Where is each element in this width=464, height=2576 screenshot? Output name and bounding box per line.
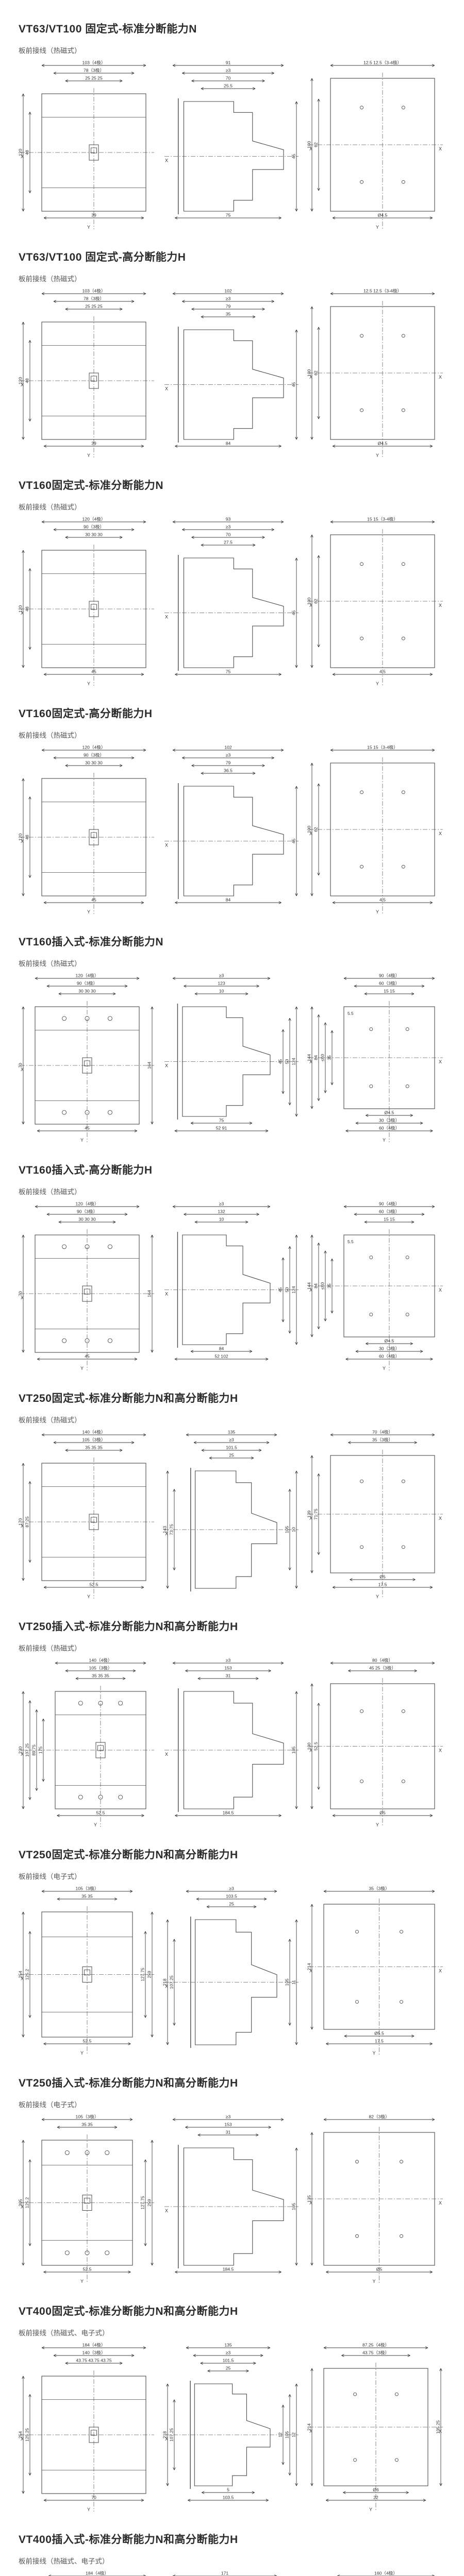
svg-text:48: 48 [25, 378, 30, 383]
svg-text:X: X [439, 1287, 442, 1293]
section-10: VT250插入式-标准分断能力N和高分断能力H板前接线（电子式）XY105（3极… [19, 2075, 449, 2285]
svg-text:105（3极）: 105（3极） [76, 1886, 99, 1891]
svg-text:101.5: 101.5 [226, 1445, 237, 1450]
rear-view-drawing: XXY12.5 12.5（3-4极）Ø4.510062 [307, 289, 444, 460]
svg-text:X: X [439, 1516, 442, 1521]
svg-text:Ø5.5: Ø5.5 [374, 2031, 384, 2036]
svg-text:≥3: ≥3 [226, 296, 231, 301]
svg-text:52.5: 52.5 [83, 2039, 92, 2044]
svg-text:31: 31 [226, 1673, 231, 1679]
rear-view: XXY160（4极）115（3极）132（3极）176（4极）21813565.… [307, 2571, 444, 2576]
svg-text:≥3: ≥3 [226, 1658, 231, 1663]
svg-text:X: X [165, 1752, 168, 1757]
svg-text:144: 144 [307, 1054, 312, 1062]
svg-text:Y: Y [383, 1138, 386, 1143]
svg-text:171: 171 [221, 2571, 229, 2576]
svg-text:22: 22 [373, 2495, 378, 2500]
svg-text:79: 79 [226, 760, 231, 766]
svg-text:Y: Y [87, 453, 90, 458]
section-title: VT250插入式-标准分断能力N和高分断能力H [19, 2075, 449, 2090]
svg-text:35 35 35: 35 35 35 [85, 1445, 103, 1450]
svg-text:105（3极）: 105（3极） [76, 2114, 99, 2120]
svg-text:25 25 25: 25 25 25 [85, 76, 103, 81]
svg-text:164: 164 [147, 1062, 152, 1070]
svg-text:43.75（3极）: 43.75（3极） [362, 2350, 389, 2355]
rear-view-drawing: XXY12.5 12.5（3-4极）Ø4.510062 [307, 60, 444, 231]
svg-text:30 30 30: 30 30 30 [85, 532, 103, 537]
section-9: VT250固定式-标准分断能力N和高分断能力H板前接线（电子式）XY105（3极… [19, 1846, 449, 2057]
svg-text:Y: Y [376, 225, 379, 230]
front-view-drawing: XY140（4极）105（3极）35 35 3552.517087.25 [19, 1430, 156, 1601]
section-7: VT250固定式-标准分断能力N和高分断能力H板前接线（热磁式）XY140（4极… [19, 1390, 449, 1601]
front-view-drawing: XY105（3极）35 3552.5305125.2259127.75 [19, 2114, 156, 2285]
svg-text:140（4极）: 140（4极） [82, 1430, 106, 1435]
drawing-row: XY103（4极）78（3极）25 25 253912048X102≥37935… [19, 289, 449, 460]
rear-view: XXY12.5 12.5（3-4极）Ø4.510062 [307, 289, 444, 460]
section-8: VT250插入式-标准分断能力N和高分断能力H板前接线（热磁式）XY140（4极… [19, 1618, 449, 1829]
svg-text:≥3: ≥3 [219, 973, 224, 978]
drawing-row: XY105（3极）35 3552.5254125.2259127.75X≥310… [19, 1886, 449, 2057]
side-view-drawing: X≥315331184.5105 [163, 1658, 300, 1829]
svg-text:Y: Y [80, 2279, 84, 2284]
rear-view: XXY90（4极）60（3极）15 15Ø4.530（3极）60（4极）1448… [307, 1201, 444, 1372]
svg-text:≤60: ≤60 [320, 1054, 325, 1061]
wiring-subtitle: 板前接线（热磁式） [19, 45, 449, 55]
svg-text:135: 135 [224, 2343, 232, 2348]
section-11: VT400固定式-标准分断能力N和高分断能力H板前接线（热磁式、电子式）XY18… [19, 2303, 449, 2514]
svg-text:30（3极）: 30（3极） [379, 1346, 400, 1351]
svg-text:143: 143 [163, 1526, 168, 1534]
svg-text:90（4极）: 90（4极） [379, 973, 400, 978]
rear-view-drawing: XXY90（4极）60（3极）15 15Ø4.530（3极）60（4极）1448… [307, 973, 444, 1144]
svg-text:90（3极）: 90（3极） [84, 524, 104, 530]
svg-text:X: X [439, 1969, 442, 1974]
side-view-drawing: X102≥379358445 [163, 289, 300, 460]
svg-text:91: 91 [226, 60, 231, 65]
front-view-drawing: XY184（4极）140（3极）43.75 43.75 43.757025412… [19, 2343, 156, 2514]
svg-text:140（3极）: 140（3极） [82, 2350, 106, 2355]
svg-text:120（4极）: 120（4极） [82, 745, 106, 750]
svg-text:Y: Y [87, 909, 90, 914]
svg-text:127.75: 127.75 [140, 2196, 145, 2210]
svg-text:35 35: 35 35 [81, 2122, 93, 2127]
svg-text:84: 84 [313, 1283, 319, 1289]
svg-text:175: 175 [38, 1747, 43, 1754]
drawing-row: XY105（3极）35 3552.5305125.2259127.75X≥315… [19, 2114, 449, 2285]
svg-text:123: 123 [218, 981, 225, 986]
svg-text:120（4极）: 120（4极） [76, 973, 99, 978]
rear-view-drawing: XXY35（3极）Ø5.517.5214 [307, 1886, 444, 2057]
svg-text:105: 105 [291, 1747, 296, 1754]
svg-text:170: 170 [19, 1518, 23, 1526]
side-view: X135≥3101.5255103.5218107.251210512 [163, 2343, 300, 2514]
wiring-subtitle: 板前接线（电子式） [19, 1871, 449, 1881]
rear-view: XXY82（3极）Ø5135 [307, 2114, 444, 2285]
section-title: VT400固定式-标准分断能力N和高分断能力H [19, 2303, 449, 2318]
svg-text:127.75: 127.75 [140, 1968, 145, 1981]
svg-text:36.5: 36.5 [224, 768, 233, 773]
rear-view: XXY35（3极）Ø5.517.5214 [307, 1886, 444, 2057]
svg-text:184.5: 184.5 [223, 2267, 234, 2272]
svg-text:105: 105 [285, 2431, 290, 2439]
svg-text:45: 45 [291, 839, 296, 844]
svg-text:254: 254 [19, 1971, 23, 1978]
svg-text:11: 11 [291, 1980, 296, 1985]
front-view: XY103（4极）78（3极）25 25 253912048 [19, 60, 156, 231]
svg-text:5: 5 [227, 2487, 229, 2493]
svg-text:132: 132 [218, 1209, 225, 1214]
svg-text:70（4极）: 70（4极） [372, 1430, 393, 1435]
svg-text:120: 120 [19, 149, 23, 157]
svg-text:45: 45 [91, 669, 96, 674]
svg-text:50: 50 [285, 1287, 290, 1293]
svg-text:153: 153 [224, 2122, 232, 2127]
svg-text:≥3: ≥3 [226, 2350, 231, 2355]
front-view: XY105（3极）35 3552.5305125.2259127.75 [19, 2114, 156, 2285]
svg-text:218: 218 [163, 2431, 168, 2439]
section-title: VT400插入式-标准分断能力N和高分断能力H [19, 2531, 449, 2547]
svg-text:103.5: 103.5 [226, 1894, 237, 1899]
svg-text:105: 105 [285, 1978, 290, 1986]
front-view: XY120（4极）90（3极）30 30 304570164 [19, 973, 156, 1144]
svg-text:25.5: 25.5 [224, 83, 233, 89]
rear-view: XXY87.25（4极）43.75（3极）Ø622214105.25 [307, 2343, 444, 2514]
drawing-row: XY103（4极）78（3极）25 25 253912048X91≥37025.… [19, 60, 449, 231]
svg-text:90（3极）: 90（3极） [84, 752, 104, 758]
svg-text:≥3: ≥3 [226, 68, 231, 73]
svg-text:124: 124 [291, 1058, 296, 1065]
svg-text:35: 35 [226, 312, 231, 317]
side-view-drawing: X102≥37936.58445 [163, 745, 300, 916]
wiring-subtitle: 板前接线（热磁式） [19, 273, 449, 283]
svg-text:4.5: 4.5 [379, 897, 386, 903]
front-view-drawing: XY184（4极）140（3极）43.75 43.75 43.757030515… [19, 2571, 156, 2576]
svg-text:Y: Y [376, 1822, 379, 1827]
svg-text:39: 39 [91, 441, 96, 446]
svg-text:25 25 25: 25 25 25 [85, 304, 103, 309]
svg-text:100: 100 [307, 826, 312, 834]
front-view-drawing: XY120（4极）90（3极）30 30 304512048 [19, 517, 156, 688]
svg-text:39: 39 [91, 213, 96, 218]
rear-view: XXY15 15（3-4极）4.510062 [307, 517, 444, 688]
side-view-drawing: X≥315331184.5105 [163, 2114, 300, 2285]
svg-text:144: 144 [307, 1282, 312, 1290]
svg-text:Ø5: Ø5 [379, 1810, 386, 1816]
sections-container: VT63/VT100 固定式-标准分断能力N板前接线（热磁式）XY103（4极）… [19, 21, 449, 2576]
front-view: XY120（4极）90（3极）30 30 304570164 [19, 1201, 156, 1372]
svg-text:120: 120 [19, 834, 23, 841]
svg-text:52 102: 52 102 [214, 1354, 228, 1359]
svg-text:90（3极）: 90（3极） [77, 1209, 97, 1214]
front-view-drawing: XY105（3极）35 3552.5254125.2259127.75 [19, 1886, 156, 2057]
svg-text:45: 45 [85, 1354, 90, 1359]
svg-text:103（4极）: 103（4极） [82, 60, 106, 65]
svg-text:45: 45 [85, 1126, 90, 1131]
svg-text:27.5: 27.5 [224, 540, 233, 545]
svg-text:X: X [165, 843, 168, 848]
section-5: VT160插入式-标准分断能力N板前接线（热磁式）XY120（4极）90（3极）… [19, 934, 449, 1144]
side-view-drawing: X≥3123107552 911245045 [163, 973, 300, 1144]
svg-text:X: X [165, 615, 168, 620]
svg-text:62: 62 [313, 142, 319, 147]
svg-text:62: 62 [313, 827, 319, 832]
svg-text:17.5: 17.5 [375, 2039, 384, 2044]
side-view: X≥3123107552 911245045 [163, 973, 300, 1144]
svg-text:45: 45 [291, 611, 296, 616]
svg-text:100: 100 [307, 1742, 312, 1750]
svg-text:124: 124 [291, 1286, 296, 1294]
svg-text:214: 214 [307, 2424, 312, 2431]
svg-text:Y: Y [80, 1138, 84, 1143]
svg-text:164: 164 [147, 1290, 152, 1298]
svg-text:305: 305 [19, 2199, 23, 2207]
svg-text:87.25: 87.25 [25, 1516, 30, 1528]
svg-text:60（4极）: 60（4极） [379, 1353, 400, 1359]
rear-view: XXY90（4极）60（3极）15 15Ø4.530（3极）60（4极）1448… [307, 973, 444, 1144]
svg-text:15 15: 15 15 [384, 1217, 395, 1222]
rear-view-drawing: XXY70（4极）35（3极）Ø517.513971.75 [307, 1430, 444, 1601]
svg-text:62: 62 [313, 370, 319, 376]
svg-text:140（4极）: 140（4极） [89, 1658, 112, 1663]
svg-text:X: X [439, 146, 442, 151]
svg-text:60（3极）: 60（3极） [379, 980, 400, 986]
svg-text:≥3: ≥3 [226, 2114, 231, 2120]
rear-view-drawing: XXY15 15（3-4极）4.510062 [307, 517, 444, 688]
side-view-drawing: X135≥3101.52514373.7510105 [163, 1430, 300, 1601]
svg-text:93: 93 [226, 517, 231, 522]
svg-text:160（4极）: 160（4极） [374, 2571, 397, 2576]
rear-view: XXY12.5 12.5（3-4极）Ø4.510062 [307, 60, 444, 231]
svg-text:102: 102 [224, 289, 232, 294]
svg-text:12.5 12.5（3-4极）: 12.5 12.5（3-4极） [363, 60, 402, 65]
svg-text:259: 259 [147, 1971, 152, 1978]
side-view-drawing: X17132≥3154203259127.75 [163, 2571, 300, 2576]
section-title: VT250固定式-标准分断能力N和高分断能力H [19, 1846, 449, 1862]
svg-text:Ø5: Ø5 [379, 1574, 386, 1580]
side-view-drawing: X≥3132108452 1021245045 [163, 1201, 300, 1372]
svg-text:84: 84 [226, 897, 231, 903]
svg-text:101.5: 101.5 [223, 2358, 234, 2363]
side-view: X17132≥3154203259127.75 [163, 2571, 300, 2576]
svg-text:87.25（4极）: 87.25（4极） [362, 2343, 389, 2348]
svg-text:70: 70 [91, 2495, 96, 2500]
svg-text:Y: Y [87, 681, 90, 686]
svg-text:Y: Y [383, 1366, 386, 1371]
svg-text:Ø4.5: Ø4.5 [385, 1110, 394, 1115]
section-title: VT63/VT100 固定式-高分断能力H [19, 249, 449, 264]
front-view-drawing: XY103（4极）78（3极）25 25 253912048 [19, 60, 156, 231]
svg-text:52.5: 52.5 [90, 1582, 98, 1587]
svg-text:84: 84 [219, 1346, 224, 1351]
svg-text:45: 45 [291, 154, 296, 159]
svg-text:Y: Y [373, 2050, 376, 2056]
svg-text:50: 50 [285, 1059, 290, 1064]
front-view: XY184（4极）140（3极）43.75 43.75 43.757030515… [19, 2571, 156, 2576]
svg-text:218: 218 [163, 1978, 168, 1986]
wiring-subtitle: 板前接线（热磁式） [19, 1642, 449, 1653]
svg-text:30 30 30: 30 30 30 [78, 1217, 96, 1222]
drawing-row: XY184（4极）140（3极）43.75 43.75 43.757030515… [19, 2571, 449, 2576]
svg-text:75: 75 [226, 669, 231, 674]
section-title: VT160插入式-高分断能力H [19, 1162, 449, 1177]
svg-text:Ø4.5: Ø4.5 [378, 213, 388, 218]
svg-text:90（3极）: 90（3极） [77, 980, 97, 986]
svg-text:79: 79 [226, 304, 231, 309]
front-view: XY120（4极）90（3极）30 30 304512048 [19, 517, 156, 688]
svg-text:35: 35 [327, 1055, 332, 1060]
svg-text:184（4极）: 184（4极） [86, 2571, 109, 2576]
svg-text:X: X [165, 1063, 168, 1069]
svg-text:17.5: 17.5 [378, 1582, 387, 1587]
svg-text:48: 48 [25, 606, 30, 612]
svg-text:5.5: 5.5 [347, 1011, 354, 1016]
svg-text:70: 70 [19, 1291, 23, 1296]
svg-text:100: 100 [307, 598, 312, 605]
svg-text:89.75: 89.75 [31, 1744, 37, 1756]
svg-text:Ø6: Ø6 [373, 2487, 379, 2493]
svg-text:52.5: 52.5 [313, 1742, 319, 1751]
svg-text:Y: Y [373, 2279, 376, 2284]
svg-text:125.25: 125.25 [25, 2428, 30, 2442]
svg-text:45: 45 [91, 897, 96, 903]
svg-text:10: 10 [219, 1217, 224, 1222]
svg-text:X: X [439, 2200, 442, 2206]
rear-view: XXY15 15（3-4极）4.510062 [307, 745, 444, 916]
front-view-drawing: XY120（4极）90（3极）30 30 304570164 [19, 1201, 156, 1372]
svg-text:120: 120 [19, 377, 23, 385]
front-view: XY103（4极）78（3极）25 25 253912048 [19, 289, 156, 460]
svg-text:139: 139 [307, 1511, 312, 1518]
drawing-row: XY140（4极）105（3极）35 35 3552.517087.25X135… [19, 1430, 449, 1601]
svg-text:≥3: ≥3 [226, 753, 231, 758]
svg-text:≥3: ≥3 [229, 1886, 234, 1891]
svg-text:184（4极）: 184（4极） [82, 2343, 106, 2348]
svg-text:102: 102 [224, 745, 232, 750]
svg-text:30（3极）: 30（3极） [379, 1117, 400, 1123]
side-view: X93≥37027.57545 [163, 517, 300, 688]
svg-text:125.2: 125.2 [25, 2197, 30, 2209]
svg-text:259: 259 [147, 2199, 152, 2207]
wiring-subtitle: 板前接线（热磁式、电子式） [19, 2555, 449, 2566]
rear-view-drawing: XXY15 15（3-4极）4.510062 [307, 745, 444, 916]
svg-text:35（3极）: 35（3极） [372, 1437, 393, 1443]
svg-text:Ø5: Ø5 [376, 2267, 383, 2272]
svg-text:25: 25 [226, 2366, 231, 2371]
wiring-subtitle: 板前接线（电子式） [19, 2099, 449, 2109]
svg-text:90（4极）: 90（4极） [379, 1201, 400, 1207]
svg-text:X: X [439, 1059, 442, 1064]
rear-view: XXY80（4极）45 25（3极）Ø510052.5 [307, 1658, 444, 1829]
svg-text:Ø4.5: Ø4.5 [378, 441, 388, 446]
section-6: VT160插入式-高分断能力H板前接线（热磁式）XY120（4极）90（3极）3… [19, 1162, 449, 1372]
svg-text:78（3极）: 78（3极） [84, 67, 104, 73]
side-view: X135≥3101.52514373.7510105 [163, 1430, 300, 1601]
section-title: VT160插入式-标准分断能力N [19, 934, 449, 949]
svg-text:135: 135 [228, 1430, 236, 1435]
svg-text:15 15（3-4极）: 15 15（3-4极） [367, 517, 398, 522]
svg-text:Y: Y [376, 909, 379, 914]
svg-text:48: 48 [25, 150, 30, 155]
drawing-row: XY120（4极）90（3极）30 30 304512048X93≥37027.… [19, 517, 449, 688]
side-view: X102≥379358445 [163, 289, 300, 460]
svg-text:107.25: 107.25 [169, 2428, 174, 2442]
svg-text:Ø4.5: Ø4.5 [385, 1338, 394, 1344]
svg-text:125.2: 125.2 [25, 1969, 30, 1980]
svg-text:75: 75 [219, 1118, 224, 1123]
svg-text:52.5: 52.5 [83, 2267, 92, 2272]
section-4: VT160固定式-高分断能力H板前接线（热磁式）XY120（4极）90（3极）3… [19, 705, 449, 916]
front-view: XY120（4极）90（3极）30 30 304512048 [19, 745, 156, 916]
svg-text:45: 45 [291, 382, 296, 387]
wiring-subtitle: 板前接线（热磁式） [19, 958, 449, 968]
svg-text:45: 45 [278, 1287, 283, 1293]
drawing-row: XY120（4极）90（3极）30 30 304512048X102≥37936… [19, 745, 449, 916]
svg-text:120: 120 [19, 605, 23, 613]
svg-text:15 15（3-4极）: 15 15（3-4极） [367, 745, 398, 750]
svg-text:≥3: ≥3 [229, 1437, 234, 1443]
side-view: X91≥37025.57545 [163, 60, 300, 231]
svg-text:30 30 30: 30 30 30 [78, 989, 96, 994]
svg-text:X: X [165, 1292, 168, 1297]
svg-text:184.5: 184.5 [223, 1810, 234, 1816]
svg-text:25: 25 [229, 1902, 234, 1907]
svg-text:105（3极）: 105（3极） [82, 1437, 106, 1443]
svg-text:48: 48 [25, 835, 30, 840]
svg-text:Y: Y [376, 453, 379, 458]
svg-text:52.5: 52.5 [96, 1810, 105, 1816]
svg-text:35（3极）: 35（3极） [369, 1886, 389, 1891]
rear-view-drawing: XXY160（4极）115（3极）132（3极）176（4极）21813565.… [307, 2571, 444, 2576]
svg-text:12.5 12.5（3-4极）: 12.5 12.5（3-4极） [363, 289, 402, 294]
section-12: VT400插入式-标准分断能力N和高分断能力H板前接线（热磁式、电子式）XY18… [19, 2531, 449, 2576]
side-view: X≥3132108452 1021245045 [163, 1201, 300, 1372]
svg-text:60（3极）: 60（3极） [379, 1209, 400, 1214]
front-view-drawing: XY120（4极）90（3极）30 30 304570164 [19, 973, 156, 1144]
svg-text:230: 230 [19, 1747, 23, 1754]
svg-text:52 91: 52 91 [216, 1126, 227, 1131]
svg-text:78（3极）: 78（3极） [84, 296, 104, 301]
svg-text:103（4极）: 103（4极） [82, 289, 106, 294]
section-3: VT160固定式-标准分断能力N板前接线（热磁式）XY120（4极）90（3极）… [19, 477, 449, 688]
svg-text:107.25: 107.25 [169, 1975, 174, 1989]
svg-text:105: 105 [285, 1526, 290, 1534]
catalog-page: VT63/VT100 固定式-标准分断能力N板前接线（热磁式）XY103（4极）… [0, 0, 464, 2576]
svg-text:15 15: 15 15 [384, 989, 395, 994]
svg-text:30 30 30: 30 30 30 [85, 760, 103, 766]
side-view: X≥315331184.5105 [163, 1658, 300, 1829]
svg-text:82（3极）: 82（3极） [369, 2114, 389, 2120]
svg-text:≥3: ≥3 [219, 1201, 224, 1207]
svg-text:35: 35 [327, 1283, 332, 1289]
rear-view-drawing: XXY87.25（4极）43.75（3极）Ø622214105.25 [307, 2343, 444, 2514]
svg-text:≤60: ≤60 [320, 1282, 325, 1290]
svg-text:10: 10 [219, 989, 224, 994]
front-view-drawing: XY140（4极）105（3极）35 35 3552.5230107.2589.… [19, 1658, 156, 1829]
section-title: VT63/VT100 固定式-标准分断能力N [19, 21, 449, 36]
svg-text:84: 84 [313, 1055, 319, 1060]
side-view-drawing: X91≥37025.57545 [163, 60, 300, 231]
wiring-subtitle: 板前接线（热磁式） [19, 1186, 449, 1196]
svg-text:Y: Y [87, 2507, 90, 2512]
svg-text:80（4极）: 80（4极） [372, 1658, 393, 1663]
drawing-row: XY120（4极）90（3极）30 30 304570164X≥31321084… [19, 1201, 449, 1372]
svg-text:120（4极）: 120（4极） [82, 517, 106, 522]
rear-view: XXY70（4极）35（3极）Ø517.513971.75 [307, 1430, 444, 1601]
svg-text:105.25: 105.25 [436, 2420, 441, 2434]
front-view: XY184（4极）140（3极）43.75 43.75 43.757025412… [19, 2343, 156, 2514]
svg-text:70: 70 [226, 76, 231, 81]
side-view-drawing: X135≥3101.5255103.5218107.251210512 [163, 2343, 300, 2514]
